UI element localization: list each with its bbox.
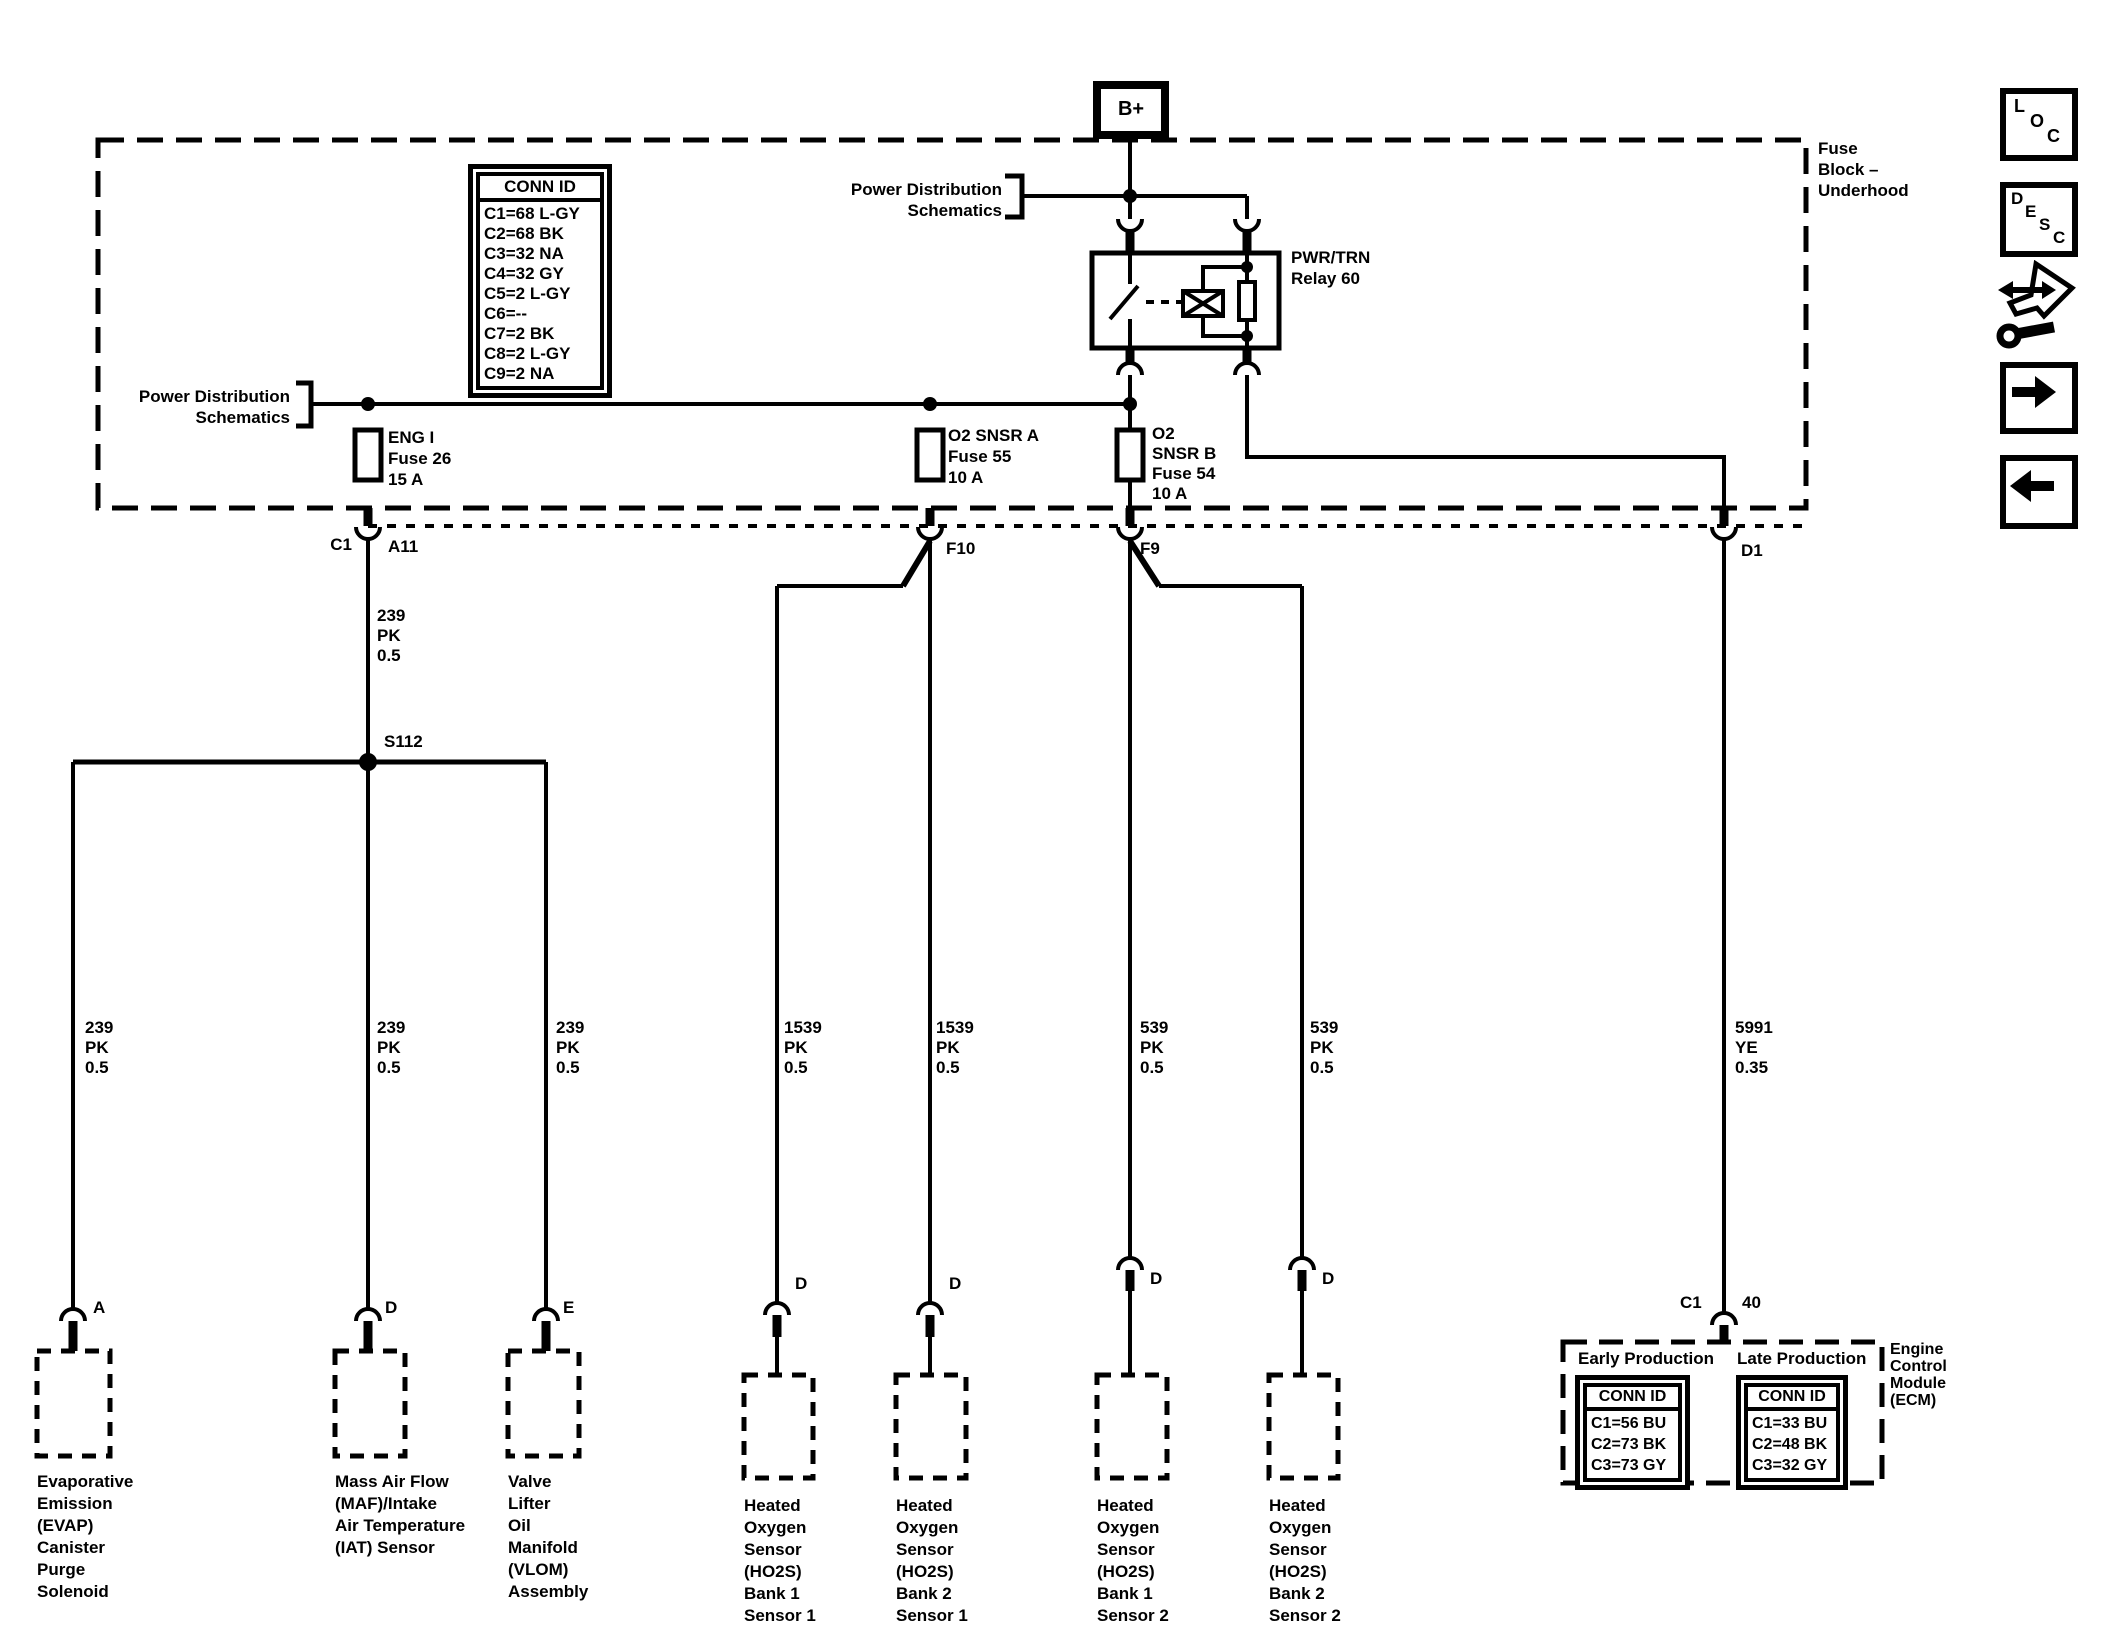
splice-s112-label: S112 [384,731,423,752]
fuse-block-title: Fuse Block – Underhood [1818,138,1909,201]
loc-button[interactable]: L O C [2000,88,2078,161]
conn-id-row: C3=73 GY [1591,1455,1674,1476]
connector-c1-label: C1 [300,534,352,555]
pin-d-maf: D [385,1297,397,1318]
conn-id-row: C1=68 L-GY [484,204,596,224]
connector-d1-label: D1 [1741,540,1763,561]
fuse-o2-snsr-a-label: O2 SNSR A Fuse 55 10 A [948,425,1039,488]
back-arrow-button[interactable] [2000,455,2078,529]
wire-label-1539-b2s1: 1539 PK 0.5 [936,1018,974,1078]
ecm-late-production-title: Late Production [1737,1348,1866,1369]
ecm-late-conn-id-table: CONN ID C1=33 BU C2=48 BK C3=32 GY [1736,1375,1848,1490]
fuse-block-conn-id-table: CONN ID C1=68 L-GY C2=68 BK C3=32 NA C4=… [468,164,612,398]
connector-a11-label: A11 [388,536,418,557]
right-arrow-icon [2006,368,2060,416]
conn-id-row: C1=33 BU [1752,1413,1832,1434]
conn-id-row: C2=68 BK [484,224,596,244]
pin-d-b1s1: D [795,1273,807,1294]
maf-iat-sensor-label: Mass Air Flow (MAF)/Intake Air Temperatu… [335,1471,465,1559]
desc-letter: E [2025,202,2036,222]
ho2s-b2s1-box [896,1375,966,1478]
ho2s-b1s2-box [1097,1375,1167,1478]
ho2s-b2s1-label: Heated Oxygen Sensor (HO2S) Bank 2 Senso… [896,1495,968,1627]
conn-id-row: C4=32 GY [484,264,596,284]
conn-id-row: C6=-- [484,304,596,324]
evap-solenoid-box [37,1351,110,1456]
ho2s-b1s1-label: Heated Oxygen Sensor (HO2S) Bank 1 Senso… [744,1495,816,1627]
fuse-o2-snsr-a [917,430,943,480]
loc-letter: L [2014,96,2025,117]
ho2s-b1s1-box [744,1375,813,1478]
desc-letter: C [2053,228,2065,248]
b-plus-label: B+ [1097,99,1165,120]
fuse-eng1-label: ENG I Fuse 26 15 A [388,427,451,490]
adjust-wrench-arrow-icon[interactable] [1996,260,2086,354]
conn-id-row: C1=56 BU [1591,1413,1674,1434]
conn-id-row: C2=48 BK [1752,1434,1832,1455]
wire-label-539-b1s2: 539 PK 0.5 [1140,1018,1168,1078]
conn-id-row: C3=32 GY [1752,1455,1832,1476]
wiring-diagram-page: B+ Fuse Block – Underhood Power Distribu… [0,0,2118,1631]
wire-label-239-maf: 239 PK 0.5 [377,1018,405,1078]
pin-d-b2s1: D [949,1273,961,1294]
conn-id-row: C8=2 L-GY [484,344,596,364]
ecm-pin-c1-label: C1 [1680,1292,1702,1313]
pin-a-evap: A [93,1297,105,1318]
fuse-o2-snsr-b-label: O2 SNSR B Fuse 54 10 A [1152,424,1216,504]
loc-letter: O [2030,111,2044,132]
power-distribution-ref-top[interactable]: Power Distribution Schematics [820,179,1002,221]
desc-letter: D [2011,189,2023,209]
pin-e-vlom: E [563,1297,574,1318]
vlom-assembly-label: Valve Lifter Oil Manifold (VLOM) Assembl… [508,1471,588,1603]
conn-id-row: C7=2 BK [484,324,596,344]
fuse-eng1 [355,430,381,480]
desc-button[interactable]: D E S C [2000,182,2078,257]
pin-d-b1s2: D [1150,1268,1162,1289]
evap-solenoid-label: Evaporative Emission (EVAP) Canister Pur… [37,1471,133,1603]
ecm-pin-40-label: 40 [1742,1292,1761,1313]
loc-letter: C [2047,126,2060,147]
wire-label-239-vlom: 239 PK 0.5 [556,1018,584,1078]
power-distribution-ref-left[interactable]: Power Distribution Schematics [108,386,290,428]
wire-label-1539-b1s1: 1539 PK 0.5 [784,1018,822,1078]
connector-f9-label: F9 [1140,538,1160,559]
splice-s112-dot [359,753,377,771]
wire-label-539-b2s2: 539 PK 0.5 [1310,1018,1338,1078]
forward-arrow-button[interactable] [2000,362,2078,434]
wire-label-239-evap: 239 PK 0.5 [85,1018,113,1078]
conn-id-row: C2=73 BK [1591,1434,1674,1455]
relay-label: PWR/TRN Relay 60 [1291,247,1370,289]
maf-iat-sensor-box [335,1351,405,1456]
ecm-early-conn-id-table: CONN ID C1=56 BU C2=73 BK C3=73 GY [1575,1375,1690,1490]
connector-stubs [73,231,1724,1351]
wire-label-239-a11: 239 PK 0.5 [377,606,405,666]
connector-f10-label: F10 [946,538,975,559]
vlom-assembly-box [508,1351,579,1456]
fuse-o2-snsr-b [1117,430,1143,480]
ecm-early-production-title: Early Production [1578,1348,1714,1369]
conn-id-row: C9=2 NA [484,364,596,384]
ho2s-b1s2-label: Heated Oxygen Sensor (HO2S) Bank 1 Senso… [1097,1495,1169,1627]
pin-d-b2s2: D [1322,1268,1334,1289]
conn-id-row: C3=32 NA [484,244,596,264]
ecm-label: Engine Control Module (ECM) [1890,1341,1947,1409]
ho2s-b2s2-label: Heated Oxygen Sensor (HO2S) Bank 2 Senso… [1269,1495,1341,1627]
wire-label-5991-ecm: 5991 YE 0.35 [1735,1018,1773,1078]
desc-letter: S [2039,215,2050,235]
conn-id-row: C5=2 L-GY [484,284,596,304]
left-arrow-icon [2006,461,2060,511]
circuit-wires [73,134,1724,1375]
ho2s-b2s2-box [1269,1375,1338,1478]
